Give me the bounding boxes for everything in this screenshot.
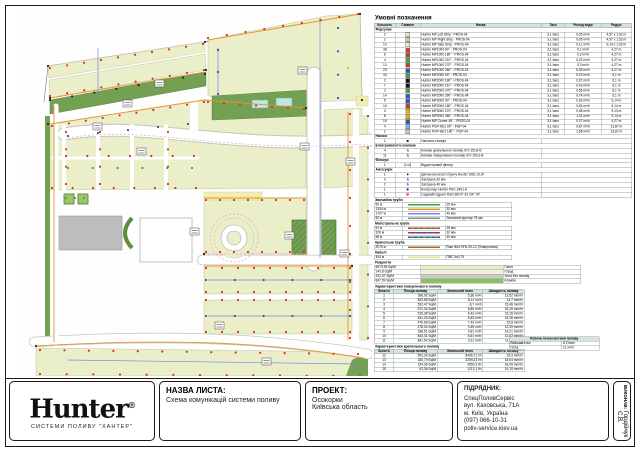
legend-pipe-sections: Звичайна труба50 м25 мм1344 м32 мм1707 м… [374, 199, 632, 261]
legend-symbol-glyph: ⊕ [406, 192, 409, 196]
legend-row: 11841,54 Sq/M9,31 m³/h11,07 mm/hr [374, 339, 524, 344]
pipe-section-label: Крапельна труба [375, 241, 632, 245]
executor-label: ВИКОНАВ: [616, 385, 628, 409]
legend-symbol-glyph: ▷◁ [405, 163, 411, 167]
hunter-logo: Hunter® [29, 392, 135, 423]
coverage-swatch [421, 279, 504, 284]
pipe-section-label: Звичайна труба [375, 199, 632, 203]
zone-table: Зона №Площа поливуЗагальний потікШвидкіс… [374, 289, 525, 344]
legend-row: Потік11 m³/h [509, 346, 599, 351]
registered-mark: ® [128, 400, 135, 410]
nozzle-symbol-swatch [405, 38, 410, 43]
nozzle-symbol-swatch [405, 119, 410, 124]
legend-symbol-glyph: ■ [406, 187, 408, 191]
contractor-street: вул. Каховська, 71А [464, 403, 602, 411]
nozzle-symbol-swatch [405, 68, 410, 73]
pipe-table: 404 мПВС 5x0,75 [374, 255, 512, 260]
legend-symbol-glyph: § [407, 182, 409, 186]
nozzle-symbol-swatch [405, 33, 410, 38]
legend-row: 52 мЗахисний футляр 75 мм [374, 216, 512, 221]
nozzle-symbol-swatch [405, 58, 410, 63]
title-block: Hunter® СИСТЕМИ ПОЛИВУ "ХАНТЕР" НАЗВА ЛИ… [9, 381, 631, 441]
sheet-name-label: НАЗВА ЛИСТА: [166, 386, 294, 395]
legend-symbol-glyph: § [407, 177, 409, 181]
zone-table-title: Характеристики поверхневого поливу [375, 285, 632, 289]
legend-symbol-glyph: § [407, 153, 409, 157]
project-line1: Осокорки [312, 397, 446, 404]
legend-row: 2076 мRain Bird XFD-09-12 (Поверхнева) [374, 245, 512, 250]
working-point-box: Робоча точка системи поливуРобочий тиск5… [509, 337, 600, 351]
legend-title: Умовні позначення [375, 14, 632, 21]
nozzle-symbol-swatch [405, 124, 410, 129]
nozzle-symbol-swatch [405, 130, 410, 135]
logo-box: Hunter® СИСТЕМИ ПОЛИВУ "ХАНТЕР" [9, 381, 155, 441]
pipe-line-swatch [408, 232, 440, 234]
sheet-border: Умовні позначення КількістьСимволНазваТи… [5, 5, 635, 447]
contractor-name: СпецПоливСервіс [464, 396, 602, 404]
logo-tagline: СИСТЕМИ ПОЛИВУ "ХАНТЕР" [31, 424, 133, 430]
pipe-line-swatch [408, 237, 440, 239]
pipe-line-swatch [408, 209, 440, 211]
nozzle-symbol-swatch [405, 99, 410, 104]
pipe-line-swatch [408, 213, 440, 215]
site-plan-map [8, 8, 372, 376]
nozzle-symbol-swatch [405, 73, 410, 78]
pipe-line-swatch [408, 247, 440, 249]
nozzle-symbol-swatch [405, 94, 410, 99]
drawing-sheet-page: Умовні позначення КількістьСимволНазваТи… [0, 0, 640, 452]
legend-row: 1563,36 Sq/M1213,1 l/h19,15 mm/hr [374, 367, 524, 372]
coverage-table: 5674,95 Sq/MГазон140,8 Sq/MГород202,37 S… [374, 265, 581, 284]
legend-zone-tables: Характеристики поверхневого поливуЗона №… [374, 285, 632, 372]
nozzle-symbol-swatch [405, 63, 410, 68]
contractor-label: ПІДРЯДНИК: [464, 386, 602, 394]
building-white [140, 218, 192, 262]
pipe-line-swatch [408, 204, 440, 206]
building-no-irrigation [58, 216, 122, 250]
project-box: ПРОЕКТ: Осокорки Київська область [305, 381, 453, 441]
pipe-line-swatch [408, 228, 440, 230]
coverage-label: Покриття [375, 261, 632, 265]
executor-name: Гордійчук С.В. [616, 411, 628, 437]
contractor-city: м. Київ, Україна [464, 411, 602, 419]
nozzle-symbol-swatch [405, 48, 410, 53]
irrigation-plan-svg [8, 8, 372, 376]
nozzle-symbol-swatch [405, 114, 410, 119]
legend-panel: Умовні позначення КількістьСимволНазваТи… [374, 14, 632, 380]
pipe-table: 2076 мRain Bird XFD-09-12 (Поверхнева) [374, 245, 512, 250]
title-block-separator [6, 378, 634, 379]
legend-coverage: Покриття5674,95 Sq/MГазон140,8 Sq/MГород… [374, 261, 632, 284]
contractor-site: poliv-service.kiev.ua [464, 426, 602, 434]
zone-table: Зона №Площа поливуЗагальний потікШвидкіс… [374, 349, 525, 372]
nozzle-symbol-swatch [405, 78, 410, 83]
pipe-table: 51 м25 мм326 м32 мм58 м40 мм [374, 226, 512, 240]
legend-row: 897,59 Sq/MКлумби [374, 279, 581, 284]
nozzle-symbol-swatch [405, 109, 410, 114]
pipe-table: 50 м25 мм1344 м32 мм1707 м40 мм52 мЗахис… [374, 203, 512, 222]
nozzle-symbol-swatch [405, 84, 410, 89]
project-label: ПРОЕКТ: [312, 386, 446, 395]
legend-row: 58 м40 мм [374, 235, 512, 240]
legend-symbol-glyph: § [407, 148, 409, 152]
nozzle-symbol-swatch [405, 104, 410, 109]
sheet-name-value: Схема комунікацій системи поливу [166, 397, 294, 404]
legend-row: 1⊕Садовий гідрант Rain Bird P-33 3/4" ЗР [374, 192, 632, 197]
legend-row: 404 мПВС 5x0,75 [374, 255, 512, 260]
nozzle-symbol-swatch [405, 53, 410, 58]
legend-main-table: КількістьСимволНазваТискРозхід водиРадіу… [374, 23, 632, 198]
legend-symbol-glyph: ■ [406, 139, 408, 143]
working-point-table: Робоча точка системи поливуРобочий тиск5… [509, 337, 600, 351]
pipe-line-swatch [408, 218, 440, 220]
pipe-section-label: Кабелі [375, 251, 632, 255]
pipe-line-swatch [408, 257, 440, 259]
project-line2: Київська область [312, 404, 446, 411]
legend-symbol-glyph: ● [406, 172, 408, 176]
nozzle-symbol-swatch [405, 43, 410, 48]
sheet-name-box: НАЗВА ЛИСТА: Схема комунікацій системи п… [159, 381, 301, 441]
contractor-box: ПІДРЯДНИК: СпецПоливСервіс вул. Каховськ… [457, 381, 609, 441]
contractor-phone: (097) 066-10-31 [464, 418, 602, 426]
pipe-section-label: Магістральна труба [375, 222, 632, 226]
nozzle-symbol-swatch [405, 89, 410, 94]
executor-box: ВИКОНАВ: Гордійчук С.В. [613, 381, 631, 441]
